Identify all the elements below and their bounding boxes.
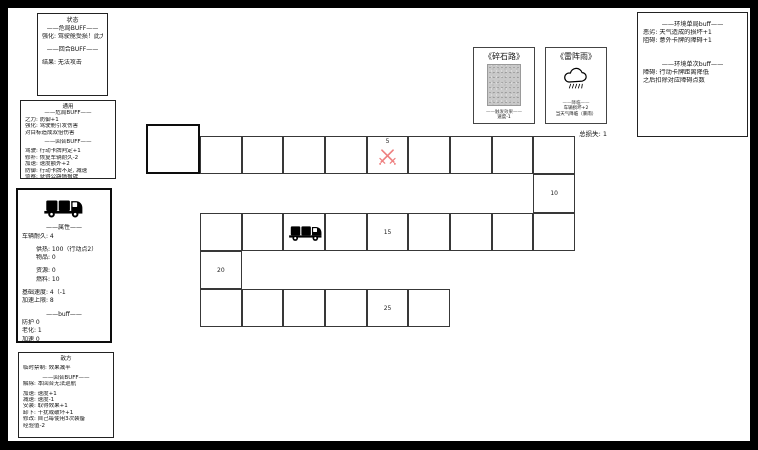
track-cell[interactable] bbox=[408, 213, 450, 251]
track-cell[interactable] bbox=[408, 289, 450, 327]
track-cell[interactable] bbox=[325, 136, 367, 175]
track-cell[interactable] bbox=[450, 213, 492, 251]
game-canvas: 状态 ——危局BUFF——强化: 驾驶舱受损！此大力——回合BUFF——结果: … bbox=[8, 8, 750, 441]
track-cell[interactable] bbox=[450, 136, 492, 175]
track-cell[interactable] bbox=[200, 136, 242, 175]
cell-number: 25 bbox=[384, 305, 392, 312]
track-start-cell[interactable] bbox=[146, 124, 200, 174]
race-track-board: 5 10 152025 bbox=[8, 8, 750, 441]
track-cell[interactable] bbox=[492, 136, 534, 175]
track-cell[interactable] bbox=[200, 289, 242, 327]
track-cell[interactable] bbox=[325, 289, 367, 327]
track-cell[interactable] bbox=[492, 213, 534, 251]
crossed-swords-icon bbox=[378, 147, 397, 166]
track-cell[interactable] bbox=[283, 136, 325, 175]
track-cell[interactable]: 5 bbox=[367, 136, 409, 175]
track-cell[interactable]: 25 bbox=[367, 289, 409, 327]
track-cell[interactable]: 20 bbox=[200, 251, 242, 289]
track-cell[interactable] bbox=[408, 136, 450, 175]
cell-number: 20 bbox=[217, 267, 225, 274]
cell-number: 5 bbox=[368, 138, 408, 145]
track-cell[interactable] bbox=[242, 213, 284, 251]
track-cell[interactable]: 15 bbox=[367, 213, 409, 251]
cell-number: 10 bbox=[550, 190, 558, 197]
track-cell[interactable] bbox=[242, 136, 284, 175]
track-cell[interactable] bbox=[283, 289, 325, 327]
track-cell[interactable]: 10 bbox=[533, 174, 575, 213]
cell-number: 15 bbox=[384, 229, 392, 236]
track-cell[interactable] bbox=[533, 136, 575, 175]
track-cell[interactable] bbox=[283, 213, 325, 251]
track-cell[interactable] bbox=[533, 213, 575, 251]
truck-token-icon[interactable] bbox=[288, 221, 324, 243]
track-cell[interactable] bbox=[200, 213, 242, 251]
track-cell[interactable] bbox=[325, 213, 367, 251]
track-cell[interactable] bbox=[242, 289, 284, 327]
